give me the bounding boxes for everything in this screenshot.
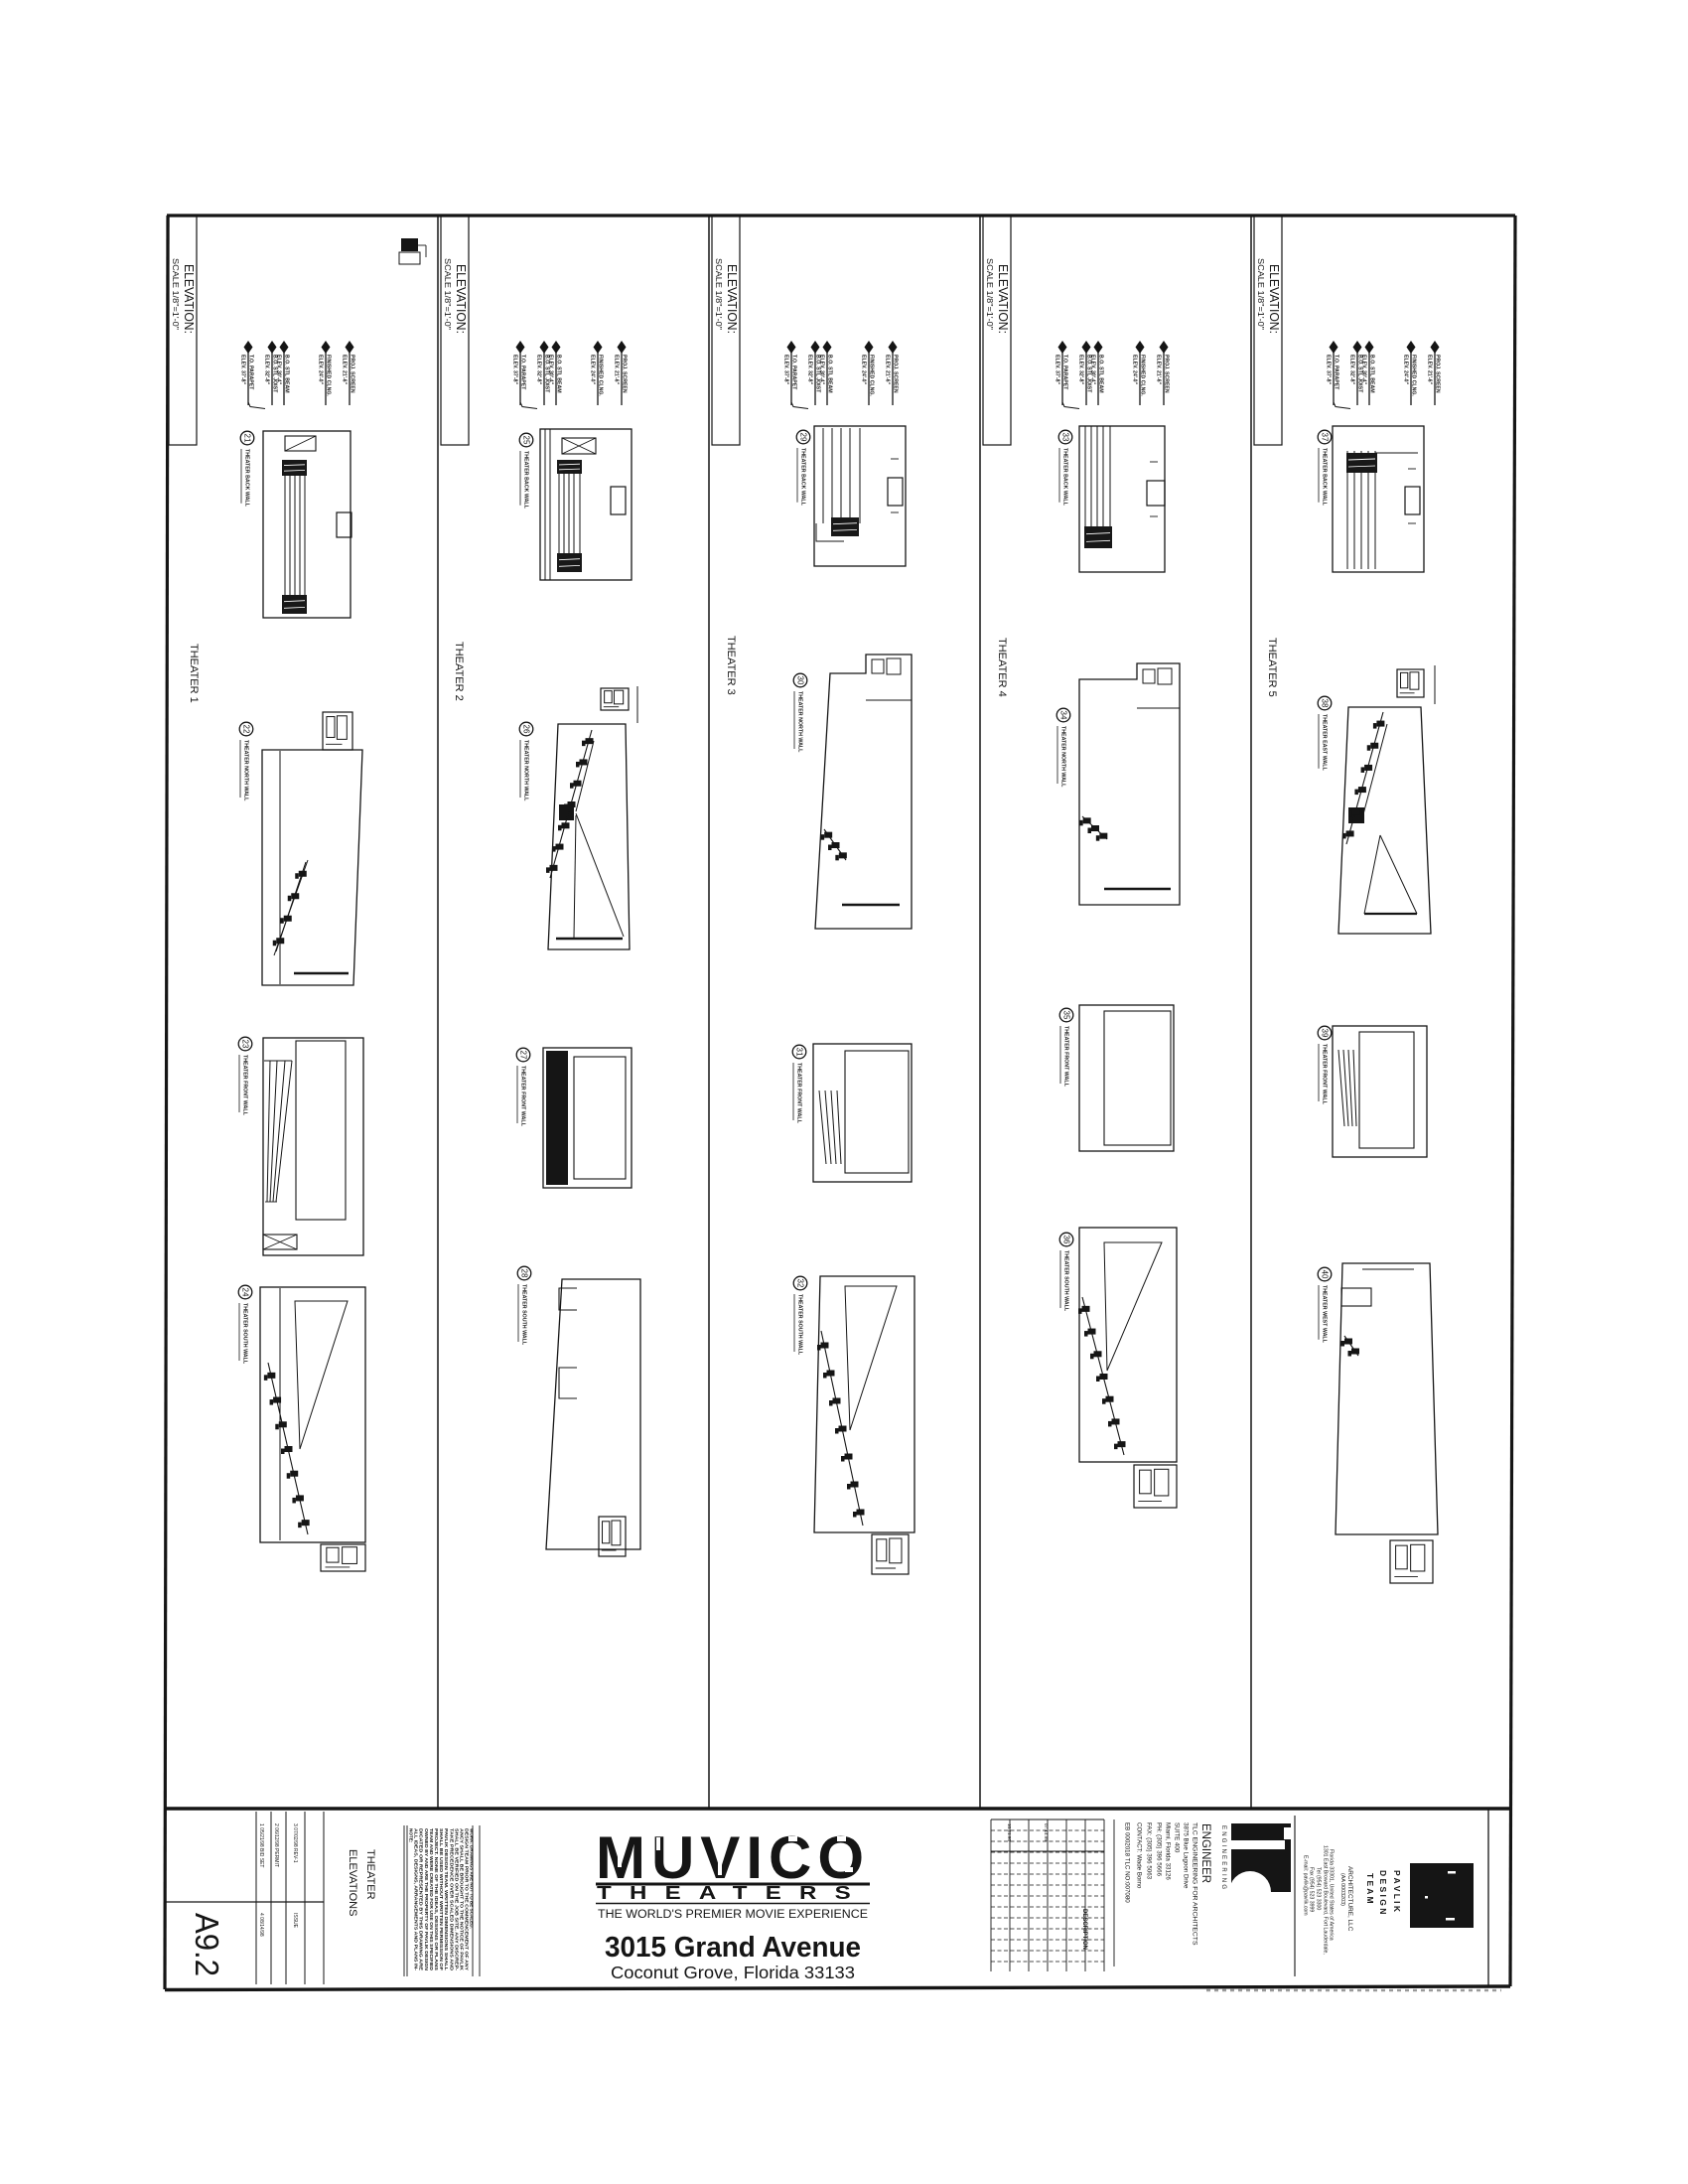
svg-text:ELEV. 32'-8": ELEV. 32'-8" xyxy=(1078,355,1084,385)
svg-text:DICATED OR REPRESENTED BY THIS: DICATED OR REPRESENTED BY THIS DRAWING A… xyxy=(419,1828,424,1970)
svg-text:ELEV. 32'-8": ELEV. 32'-8" xyxy=(264,355,270,385)
svg-text:EB 0002018 TLC NO:007: EB 0002018 TLC NO:007080 xyxy=(1124,1822,1131,1903)
svg-text:THEATER NORTH WALL: THEATER NORTH WALL xyxy=(1060,726,1066,788)
svg-text:THEATER BACK WALL: THEATER BACK WALL xyxy=(1322,448,1328,507)
svg-text:SCALE 1/8"=1'-0": SCALE 1/8"=1'-0" xyxy=(171,258,180,330)
svg-text:PROJ. SCREEN: PROJ. SCREEN xyxy=(622,355,628,393)
svg-text:FINISHED CLNG.: FINISHED CLNG. xyxy=(1411,355,1417,396)
svg-text:THEATER FRONT WALL: THEATER FRONT WALL xyxy=(520,1066,526,1127)
svg-text:PAVLIK DESIGN TEAM. WRITTEN DI: PAVLIK DESIGN TEAM. WRITTEN DIMENSIONS S… xyxy=(444,1828,449,1970)
svg-text:FINISHED CLNG.: FINISHED CLNG. xyxy=(1140,355,1146,396)
svg-text:ELEV. 24'-0": ELEV. 24'-0" xyxy=(861,355,867,385)
svg-text:ELEV. 37'-8": ELEV. 37'-8" xyxy=(783,355,789,385)
svg-text:THEATER FRONT WALL: THEATER FRONT WALL xyxy=(242,1055,248,1116)
svg-text:SHALL BE VERIFIED ON THE JOB S: SHALL BE VERIFIED ON THE JOB SITE. ANY D… xyxy=(454,1828,459,1971)
svg-text:THEATER BACK WALL: THEATER BACK WALL xyxy=(800,448,806,507)
svg-text:ELEV. 21'-6": ELEV. 21'-6" xyxy=(1427,355,1433,385)
svg-text:THEATER 2: THEATER 2 xyxy=(453,642,465,701)
svg-text:T.O. PARAPET: T.O. PARAPET xyxy=(791,355,797,390)
svg-text:SUITE 400: SUITE 400 xyxy=(1174,1822,1181,1853)
svg-text:PROJ. SCREEN: PROJ. SCREEN xyxy=(893,355,899,393)
svg-text:PROJ. SCREEN: PROJ. SCREEN xyxy=(1164,355,1170,393)
svg-text:ELEV. 32'-8": ELEV. 32'-8" xyxy=(536,355,542,385)
svg-text:THEATER WEST WALL: THEATER WEST WALL xyxy=(1322,1285,1328,1344)
svg-text:10.21.98: 10.21.98 xyxy=(1007,1823,1012,1841)
svg-text:ELEVATION:: ELEVATION: xyxy=(725,264,739,334)
svg-text:OWNED BY AND ARE THE PROPERTY: OWNED BY AND ARE THE PROPERTY OF PAVLIK … xyxy=(424,1828,429,1971)
svg-text:ELEV. 24'-0": ELEV. 24'-0" xyxy=(1132,355,1138,385)
svg-text:ELEVATION:: ELEVATION: xyxy=(1267,264,1281,334)
svg-text:B.O. STL BEAM: B.O. STL BEAM xyxy=(1098,355,1104,393)
svg-text:THEATER NORTH WALL: THEATER NORTH WALL xyxy=(523,740,529,801)
svg-text:40: 40 xyxy=(1320,1270,1329,1279)
svg-text:SHALL BE USED WITHOUT WRITTEN: SHALL BE USED WITHOUT WRITTEN PERMISSION… xyxy=(439,1828,444,1970)
svg-text:ELEV. 37'-8": ELEV. 37'-8" xyxy=(1326,355,1332,385)
svg-text:ANCY SHALL BE BROUGHT TO THE N: ANCY SHALL BE BROUGHT TO THE NOTICE OF P… xyxy=(460,1828,465,1971)
svg-text:A9.2: A9.2 xyxy=(189,1913,225,1976)
svg-text:B.O. STL BEAM: B.O. STL BEAM xyxy=(556,355,562,393)
svg-text:PROJ. SCREEN: PROJ. SCREEN xyxy=(1435,355,1441,393)
svg-text:ELEVATION:: ELEVATION: xyxy=(454,264,468,334)
svg-text:SCALE 1/8"=1'-0": SCALE 1/8"=1'-0" xyxy=(985,258,994,330)
svg-text:THEATER SOUTH WALL: THEATER SOUTH WALL xyxy=(1063,1250,1069,1312)
svg-text:T.O. PARAPET: T.O. PARAPET xyxy=(1062,355,1068,390)
svg-text:THEATER 4: THEATER 4 xyxy=(996,638,1008,697)
svg-text:THEATER BACK WALL: THEATER BACK WALL xyxy=(1062,448,1068,507)
svg-text:Fax (954) 523 3999: Fax (954) 523 3999 xyxy=(1309,1867,1315,1912)
svg-text:3875 Blue Lagoon Drive: 3875 Blue Lagoon Drive xyxy=(1183,1822,1190,1889)
svg-text:ELEV. 24'-0": ELEV. 24'-0" xyxy=(590,355,596,385)
svg-text:THEATER FRONT WALL: THEATER FRONT WALL xyxy=(796,1063,802,1124)
svg-text:29: 29 xyxy=(798,433,807,442)
svg-text:35: 35 xyxy=(1061,1011,1070,1020)
svg-text:3015 Grand Avenue: 3015 Grand Avenue xyxy=(605,1932,861,1964)
svg-text:THE WORLD'S PREMIER MOVIE EXPE: THE WORLD'S PREMIER MOVIE EXPERIENCE xyxy=(598,1909,868,1921)
svg-text:ALL IDEAS, DESIGNS, ARRANGEMEN: ALL IDEAS, DESIGNS, ARRANGEMENTS AND PLA… xyxy=(414,1828,419,1971)
svg-text:DESCRIPTION: DESCRIPTION xyxy=(1081,1909,1087,1950)
svg-text:24: 24 xyxy=(240,1288,249,1297)
svg-text:31: 31 xyxy=(794,1048,803,1057)
svg-text:ELEV. 21'-6": ELEV. 21'-6" xyxy=(614,355,620,385)
svg-text:THEATER EAST WALL: THEATER EAST WALL xyxy=(1322,714,1328,771)
svg-text:THEATER SOUTH WALL: THEATER SOUTH WALL xyxy=(242,1303,248,1365)
svg-text:P A V L I K: P A V L I K xyxy=(1392,1870,1402,1913)
svg-text:PROJECT. NONE OF THE IDEAS, DE: PROJECT. NONE OF THE IDEAS, DESIGNS OR P… xyxy=(434,1828,439,1970)
svg-text:TLC ENGINEERING FOR ARCHITECTS: TLC ENGINEERING FOR ARCHITECTS xyxy=(1192,1822,1198,1946)
svg-text:B.O. STL BEAM: B.O. STL BEAM xyxy=(827,355,833,393)
svg-text:39: 39 xyxy=(1320,1029,1329,1038)
svg-text:FINISHED CLNG.: FINISHED CLNG. xyxy=(598,355,604,396)
svg-text:ELEV. 30'-4": ELEV. 30'-4" xyxy=(819,355,825,385)
svg-text:ELEV. 32'-8": ELEV. 32'-8" xyxy=(807,355,813,385)
svg-text:THEATER: THEATER xyxy=(364,1849,376,1900)
svg-text:34: 34 xyxy=(1058,711,1067,720)
svg-text:23: 23 xyxy=(240,1040,249,1049)
svg-text:B.O. STL BEAM: B.O. STL BEAM xyxy=(1369,355,1375,393)
svg-text:THEATER 5: THEATER 5 xyxy=(1266,638,1278,697)
svg-text:4 08/14/98: 4 08/14/98 xyxy=(258,1913,264,1937)
svg-text:28: 28 xyxy=(519,1269,528,1278)
svg-text:E-mail: pavlik@pavlik.com: E-mail: pavlik@pavlik.com xyxy=(1303,1855,1309,1916)
svg-text:ENGINEER: ENGINEER xyxy=(1199,1823,1211,1883)
svg-text:B.O. STL BEAM: B.O. STL BEAM xyxy=(284,355,290,393)
svg-text:27: 27 xyxy=(518,1051,527,1060)
svg-text:ELEV. 30'-4": ELEV. 30'-4" xyxy=(548,355,554,385)
svg-text:30: 30 xyxy=(795,676,804,685)
svg-text:ELEV. 30'-4": ELEV. 30'-4" xyxy=(276,355,282,385)
svg-text:FINISHED CLNG.: FINISHED CLNG. xyxy=(869,355,875,396)
svg-text:ELEV. 30'-4": ELEV. 30'-4" xyxy=(1090,355,1096,385)
svg-text:ELEV. 30'-4": ELEV. 30'-4" xyxy=(1361,355,1367,385)
svg-text:T E A M: T E A M xyxy=(1365,1873,1375,1904)
svg-text:ELEV. 21'-6": ELEV. 21'-6" xyxy=(1156,355,1162,385)
svg-text:ELEVATIONS: ELEVATIONS xyxy=(347,1849,358,1916)
svg-text:CONTACT: Wade Borno: CONTACT: Wade Borno xyxy=(1136,1822,1143,1889)
svg-text:33: 33 xyxy=(1060,433,1069,442)
svg-text:ELEV. 32'-8": ELEV. 32'-8" xyxy=(1349,355,1355,385)
svg-text:1301 East Broward Boulevard, F: 1301 East Broward Boulevard, Fort Lauder… xyxy=(1323,1845,1329,1955)
svg-text:Miami, Florida 33126: Miami, Florida 33126 xyxy=(1165,1822,1172,1880)
svg-text:T.O. PARAPET: T.O. PARAPET xyxy=(1334,355,1339,390)
svg-text:ELEV. 21'-6": ELEV. 21'-6" xyxy=(885,355,891,385)
svg-text:(AA 0003203): (AA 0003203) xyxy=(1339,1873,1345,1906)
svg-text:D E S I G N: D E S I G N xyxy=(1378,1870,1388,1914)
svg-text:THEATER NORTH WALL: THEATER NORTH WALL xyxy=(243,740,249,801)
svg-text:21: 21 xyxy=(242,434,251,443)
svg-text:T.O. PARAPET: T.O. PARAPET xyxy=(520,355,526,390)
svg-text:ELEVATION:: ELEVATION: xyxy=(182,264,196,334)
svg-text:THEATER SOUTH WALL: THEATER SOUTH WALL xyxy=(797,1294,803,1356)
svg-text:37: 37 xyxy=(1320,433,1329,442)
svg-text:DESIGN TEAM PRIOR TO THE COMME: DESIGN TEAM PRIOR TO THE COMMENCEMENT OF… xyxy=(465,1828,470,1970)
svg-text:SCALE 1/8"=1'-0": SCALE 1/8"=1'-0" xyxy=(443,258,452,330)
svg-text:PROJ. SCREEN: PROJ. SCREEN xyxy=(350,355,355,393)
svg-text:THEATER SOUTH WALL: THEATER SOUTH WALL xyxy=(521,1284,527,1346)
svg-text:THEATER BACK WALL: THEATER BACK WALL xyxy=(244,449,250,508)
svg-text:ELEV. 37'-8": ELEV. 37'-8" xyxy=(512,355,518,385)
svg-text:36: 36 xyxy=(1061,1236,1070,1244)
svg-text:1 05/21/98 BID SET: 1 05/21/98 BID SET xyxy=(258,1823,264,1867)
svg-text:3 07/02/98 REV-1: 3 07/02/98 REV-1 xyxy=(292,1823,298,1863)
svg-text:TAKE PRECEDENCE OVER SCALED DI: TAKE PRECEDENCE OVER SCALED DIMENSIONS A… xyxy=(449,1828,454,1971)
svg-text:THEATER 1: THEATER 1 xyxy=(188,644,200,703)
svg-text:22: 22 xyxy=(241,725,250,734)
svg-text:38: 38 xyxy=(1320,699,1329,708)
svg-text:ISSUE: ISSUE xyxy=(292,1913,298,1929)
svg-text:ARCHITECTURE, LLC: ARCHITECTURE, LLC xyxy=(1346,1866,1353,1932)
svg-text:Tel (954) 523 3300: Tel (954) 523 3300 xyxy=(1316,1867,1322,1910)
svg-text:ENGINEERING: ENGINEERING xyxy=(1220,1825,1226,1891)
svg-text:NOTE:: NOTE: xyxy=(409,1828,414,1843)
svg-text:FINISHED CLNG.: FINISHED CLNG. xyxy=(326,355,332,396)
svg-text:Coconut Grove, Florida 33133: Coconut Grove, Florida 33133 xyxy=(611,1963,855,1982)
svg-text:THEATER BACK WALL: THEATER BACK WALL xyxy=(523,451,529,510)
svg-text:WORK. DRAWINGS ARE NOT TO BE S: WORK. DRAWINGS ARE NOT TO BE SCALED. xyxy=(470,1828,475,1929)
svg-text:T.O. PARAPET: T.O. PARAPET xyxy=(248,355,254,390)
svg-text:2 06/12/98 PERMIT: 2 06/12/98 PERMIT xyxy=(273,1823,279,1867)
svg-text:THEATER FRONT WALL: THEATER FRONT WALL xyxy=(1322,1044,1328,1105)
svg-text:ELEV. 37'-8": ELEV. 37'-8" xyxy=(1055,355,1060,385)
svg-text:ELEV. 37'-8": ELEV. 37'-8" xyxy=(240,355,246,385)
svg-text:ELEV. 24'-0": ELEV. 24'-0" xyxy=(1403,355,1409,385)
svg-text:THEATERS: THEATERS xyxy=(597,1882,869,1903)
svg-text:25: 25 xyxy=(521,436,530,445)
svg-text:FAX: (305) 396 5063: FAX: (305) 396 5063 xyxy=(1146,1822,1153,1880)
svg-text:THEATER 3: THEATER 3 xyxy=(725,636,737,695)
svg-text:MUVICO: MUVICO xyxy=(596,1824,870,1891)
svg-text:32: 32 xyxy=(795,1279,804,1288)
svg-text:ELEVATION:: ELEVATION: xyxy=(996,264,1010,334)
svg-text:Florida 33301, United States o: Florida 33301, United States of America xyxy=(1329,1849,1335,1941)
svg-text:07.14.98: 07.14.98 xyxy=(1044,1823,1049,1841)
svg-text:THEATER FRONT WALL: THEATER FRONT WALL xyxy=(1063,1026,1069,1088)
svg-text:TEAM AND WERE CREATED FOR USE: TEAM AND WERE CREATED FOR USE ON THIS SP… xyxy=(429,1828,434,1971)
svg-text:SCALE 1/8"=1'-0": SCALE 1/8"=1'-0" xyxy=(1256,258,1265,330)
svg-text:26: 26 xyxy=(521,725,530,734)
svg-text:PH: (305) 396 5666: PH: (305) 396 5666 xyxy=(1156,1822,1163,1877)
svg-text:SCALE 1/8"=1'-0": SCALE 1/8"=1'-0" xyxy=(714,258,723,330)
svg-text:ELEV. 24'-0": ELEV. 24'-0" xyxy=(318,355,324,385)
svg-text:ELEV. 21'-6": ELEV. 21'-6" xyxy=(342,355,348,385)
svg-text:THEATER NORTH WALL: THEATER NORTH WALL xyxy=(797,691,803,753)
